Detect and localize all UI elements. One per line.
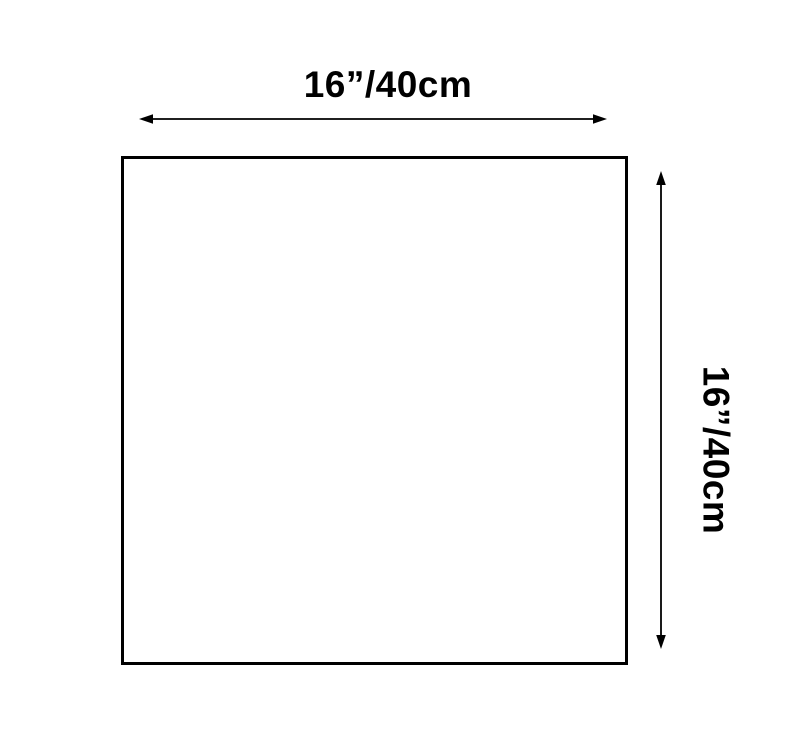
diagram-canvas: 16”/40cm 16”/40cm xyxy=(0,0,800,745)
height-dimension-label: 16”/40cm xyxy=(698,366,735,535)
dimension-arrows-layer xyxy=(0,0,800,745)
horizontal-dimension-arrow xyxy=(139,114,607,124)
vertical-arrow-bottom-head-icon xyxy=(656,635,666,649)
horizontal-arrow-right-head-icon xyxy=(593,114,607,124)
vertical-arrow-top-head-icon xyxy=(656,171,666,185)
width-dimension-label: 16”/40cm xyxy=(304,66,473,103)
vertical-dimension-arrow xyxy=(656,171,666,649)
horizontal-arrow-left-head-icon xyxy=(139,114,153,124)
